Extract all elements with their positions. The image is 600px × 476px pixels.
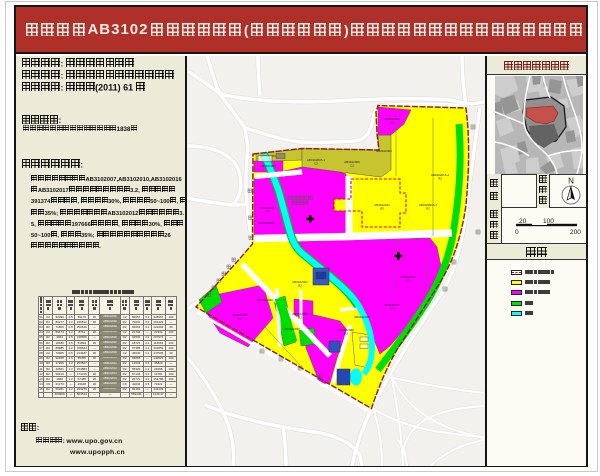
svg-text:R2: R2: [438, 176, 442, 180]
svg-text:C2: C2: [390, 120, 394, 124]
svg-text:C2: C2: [350, 163, 354, 167]
svg-text:C9: C9: [266, 209, 270, 213]
svg-text:R2: R2: [298, 315, 302, 319]
svg-text:AB3102022: AB3102022: [257, 298, 273, 302]
svg-text:C9: C9: [406, 278, 410, 282]
svg-text:R2: R2: [380, 206, 384, 210]
svg-text:R2: R2: [344, 331, 348, 335]
svg-text:AB3102004: AB3102004: [376, 149, 392, 153]
svg-text:R2: R2: [298, 283, 302, 287]
svg-text:C9: C9: [390, 306, 394, 310]
svg-text:R2: R2: [426, 206, 430, 210]
svg-text:200: 200: [570, 229, 581, 236]
svg-text:C2: C2: [314, 161, 318, 165]
svg-text:0: 0: [515, 229, 519, 236]
svg-text:AB3102027: AB3102027: [284, 327, 300, 331]
svg-text:AB3102003: AB3102003: [260, 164, 276, 168]
svg-text:N: N: [568, 177, 574, 186]
svg-text:AB3102025: AB3102025: [354, 315, 370, 319]
svg-text:AB3102008: AB3102008: [258, 221, 274, 225]
svg-text:R2: R2: [238, 316, 242, 320]
